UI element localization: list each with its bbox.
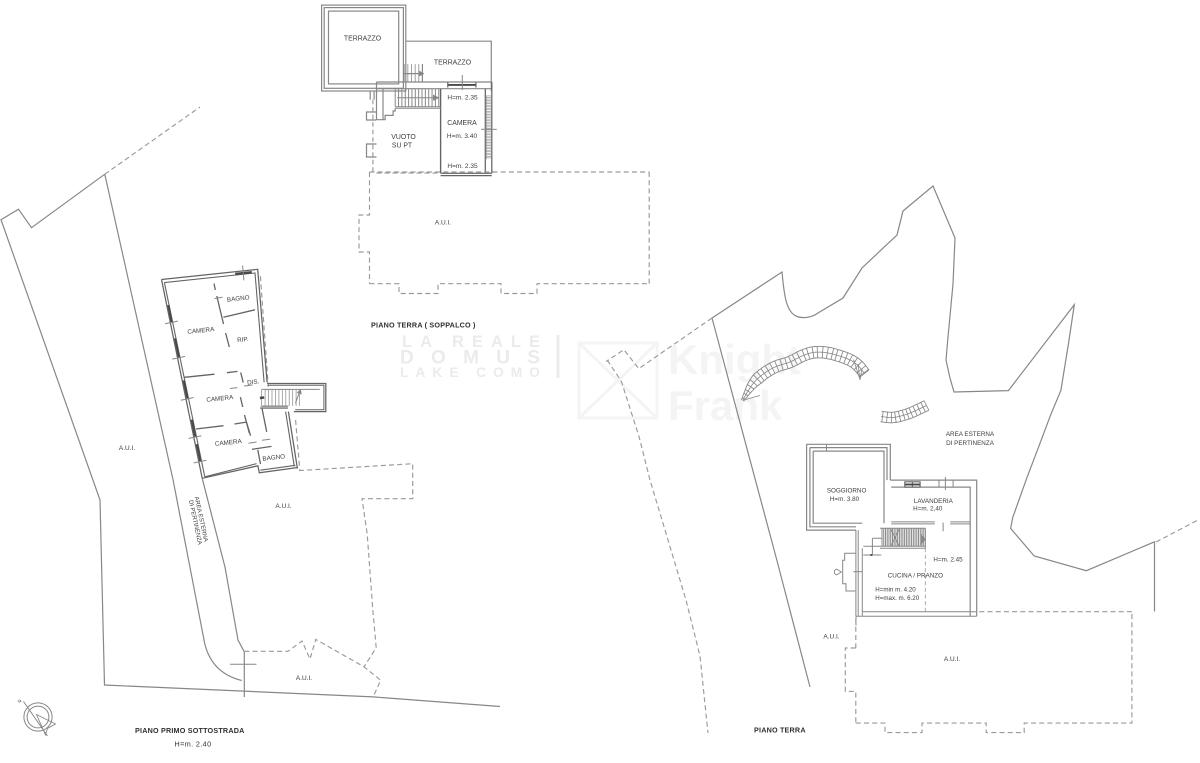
svg-text:H=max. m. 6.20: H=max. m. 6.20 [875,595,919,602]
svg-text:CUCINA / PRANZO: CUCINA / PRANZO [888,573,943,580]
svg-text:PIANO TERRA ( SOPPALCO ): PIANO TERRA ( SOPPALCO ) [371,321,476,330]
svg-text:VUOTO: VUOTO [391,134,416,141]
svg-text:A.U.I.: A.U.I. [944,656,960,663]
svg-text:A.U.I.: A.U.I. [119,445,135,452]
svg-text:PIANO PRIMO SOTTOSTRADA: PIANO PRIMO SOTTOSTRADA [135,726,245,735]
svg-text:SU PT: SU PT [392,143,413,150]
svg-text:AREA ESTERNA: AREA ESTERNA [946,431,995,438]
svg-text:SOGGIORNO: SOGGIORNO [827,488,867,495]
svg-text:A.U.I.: A.U.I. [435,220,451,227]
svg-text:Frank: Frank [668,382,783,429]
svg-text:H=m. 2.45: H=m. 2.45 [933,557,963,564]
svg-text:PIANO TERRA: PIANO TERRA [754,726,806,735]
svg-text:H=m. 3.40: H=m. 3.40 [447,133,478,140]
svg-text:H=m. 2.40: H=m. 2.40 [175,740,212,749]
svg-text:H=m. 2,40: H=m. 2,40 [913,506,943,513]
svg-text:TERRAZZO: TERRAZZO [434,60,472,67]
svg-text:H=min m. 4.20: H=min m. 4.20 [875,587,916,594]
svg-text:CAMERA: CAMERA [447,120,477,127]
svg-text:H=m. 3.80: H=m. 3.80 [830,496,860,503]
svg-text:A.U.I.: A.U.I. [296,675,312,682]
svg-text:DI PERTINENZA: DI PERTINENZA [946,440,995,447]
svg-text:H=m. 2.35: H=m. 2.35 [447,95,478,102]
svg-text:A.U.I.: A.U.I. [823,634,839,641]
svg-text:LAVANDERIA: LAVANDERIA [914,498,954,505]
svg-text:Knight: Knight [668,336,801,383]
svg-text:H=m. 2.35: H=m. 2.35 [447,163,478,170]
svg-text:RIP.: RIP. [237,336,249,344]
svg-text:TERRAZZO: TERRAZZO [344,36,382,43]
svg-text:A.U.I.: A.U.I. [275,503,291,510]
